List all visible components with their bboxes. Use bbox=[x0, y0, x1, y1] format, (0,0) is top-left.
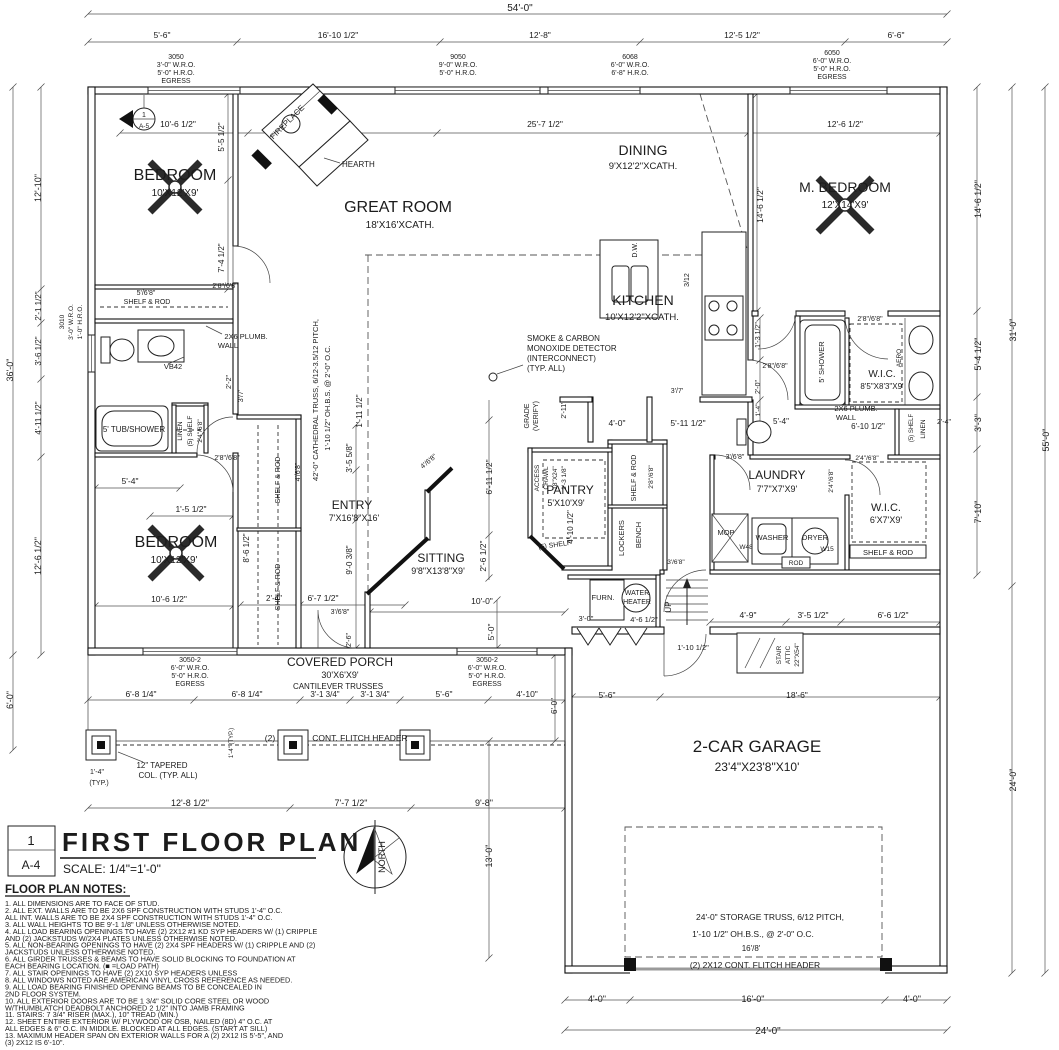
floor-plan-sheet: NORTH 1 A-4 FIRST FLOOR PLAN SCALE: 1/4"… bbox=[0, 0, 1059, 1050]
closet-label: SHELF & ROD bbox=[863, 548, 914, 557]
furnace-label: FURN. bbox=[592, 593, 615, 602]
room-label-master-wic: W.I.C. bbox=[868, 369, 895, 380]
door-callout: 4'/6'8" bbox=[420, 453, 439, 471]
plumb-wall-note: 2X6 PLUMB. bbox=[834, 404, 877, 413]
north-label: NORTH bbox=[377, 841, 387, 873]
dim: 4'-9" bbox=[740, 610, 757, 620]
lockers-label: LOCKERS bbox=[617, 520, 626, 556]
smoke-note: MONOXIDE DETECTOR bbox=[527, 344, 617, 353]
door-callout: 4'/6'8" bbox=[295, 462, 302, 481]
kitchen-range-counter bbox=[702, 232, 746, 395]
column-note: COL. (TYP. ALL) bbox=[139, 771, 198, 780]
dim: 6'-0" bbox=[5, 691, 15, 709]
room-size: 7'X16'8"X16' bbox=[329, 513, 380, 523]
window-callout: 1'-0" H.R.O. bbox=[77, 305, 84, 340]
window-callout: 3010 bbox=[59, 314, 66, 329]
dim: 5'-5 1/2" bbox=[217, 122, 226, 151]
fixtures bbox=[96, 232, 933, 673]
room-size: 23'4"X23'8"X10' bbox=[715, 760, 800, 774]
dim: 2'-0" bbox=[755, 380, 762, 394]
window-callout: 3'-0" W.R.O. bbox=[157, 62, 195, 69]
notes-list: 1. ALL DIMENSIONS ARE TO FACE OF STUD.2.… bbox=[5, 899, 317, 1047]
slope-label: 3/12 bbox=[684, 273, 691, 287]
room-size: 6'X7'X9' bbox=[870, 515, 902, 525]
smoke-note: (TYP. ALL) bbox=[527, 364, 565, 373]
title-block: 1 A-4 FIRST FLOOR PLAN SCALE: 1/4"=1'-0" bbox=[8, 826, 361, 876]
dim: 5'-6" bbox=[599, 690, 616, 700]
room-size: 9'8"X13'8"X9' bbox=[411, 566, 465, 576]
sheet-scale: SCALE: 1/4"=1'-0" bbox=[63, 862, 161, 876]
dim: 31'-0" bbox=[1008, 319, 1018, 342]
porch-column bbox=[278, 730, 308, 760]
tub-label: 5' TUB/SHOWER bbox=[103, 425, 166, 434]
attic-stair-label: STAIR bbox=[776, 645, 783, 664]
dim: 5'-6" bbox=[436, 689, 453, 699]
room-size: 12'X14'X9' bbox=[822, 200, 869, 211]
grade-note: (VERIFY) bbox=[533, 401, 540, 431]
dim: 4'-10 1/2" bbox=[566, 510, 575, 544]
window-callout: 5'-0" H.R.O. bbox=[157, 70, 194, 77]
window-callout: 9050 bbox=[450, 54, 466, 61]
floor-plan-notes: FLOOR PLAN NOTES: 1. ALL DIMENSIONS ARE … bbox=[5, 884, 317, 1047]
detail-number: 1 bbox=[27, 833, 34, 848]
window-3050-2-left bbox=[143, 648, 237, 655]
attic-stair-label: ATTIC bbox=[785, 646, 792, 665]
dim: 13'-0" bbox=[484, 845, 494, 868]
closet-label: SHELF & ROD bbox=[631, 455, 638, 502]
attic-stair-label: 22"X54" bbox=[794, 643, 801, 667]
dim: 8'-6 1/2" bbox=[242, 533, 251, 562]
dim: 1'-4" bbox=[755, 403, 762, 417]
dim: 3'-5 1/2" bbox=[797, 610, 828, 620]
dim: 12'-5 1/2" bbox=[724, 30, 760, 40]
dim: 12'-6 1/2" bbox=[827, 119, 863, 129]
dim: 55'-0" bbox=[1041, 429, 1051, 452]
linen-label: LINEN bbox=[920, 419, 927, 438]
crawl-access-label: CRAWL bbox=[543, 466, 550, 490]
header-note: (2) bbox=[265, 733, 276, 743]
window-callout: 6'-0" W.R.O. bbox=[813, 58, 851, 65]
porch-column bbox=[86, 730, 116, 760]
shelf-label: (5) SHELF bbox=[909, 413, 915, 442]
dim: 5'-4 1/2" bbox=[973, 338, 983, 371]
room-size: 7'7"X7'X9' bbox=[757, 484, 798, 494]
plumb-wall-note: WALL bbox=[836, 413, 856, 422]
dim: 2'-6" bbox=[346, 633, 353, 647]
room-size: 10'X12'X9' bbox=[151, 555, 198, 566]
room-size: 9'X12'2"XCATH. bbox=[609, 161, 678, 172]
door-callout: 2'8"/6'8" bbox=[212, 283, 238, 290]
window-callout: 5'-0" H.R.O. bbox=[468, 673, 505, 680]
dim: 1'-3 1/2" bbox=[755, 322, 762, 348]
plumb-wall-note: WALL bbox=[218, 341, 238, 350]
closet-label: SHELF & ROD bbox=[275, 564, 282, 611]
window-callout: 5'-0" H.R.O. bbox=[171, 673, 208, 680]
dim: 6'-11 1/2" bbox=[484, 459, 494, 494]
door-callout: 3'/6'8" bbox=[331, 609, 350, 616]
dim: 4'-11 1/2" bbox=[34, 401, 43, 434]
window-3010 bbox=[88, 335, 95, 372]
room-label-master-bedroom: M. BEDROOM bbox=[799, 179, 891, 195]
dryer-label: DRYER bbox=[802, 533, 829, 542]
room-label-dining: DINING bbox=[619, 142, 668, 158]
dim: 4'-0" bbox=[903, 994, 921, 1004]
dim: 4'-0" bbox=[588, 994, 606, 1004]
door-callout: 2'8"/6'8" bbox=[762, 363, 788, 370]
window-callout: EGRESS bbox=[175, 681, 205, 688]
dim: 6'-7 1/2" bbox=[307, 593, 338, 603]
door-callout: 2'8"/6'8" bbox=[648, 465, 655, 489]
master-toilet bbox=[737, 419, 771, 445]
dim: 10'-0" bbox=[471, 596, 493, 606]
dim: 10'-6 1/2" bbox=[151, 594, 187, 604]
dim: 2'-4" bbox=[937, 419, 951, 426]
section-marker bbox=[119, 95, 155, 130]
room-label-bedroom-2: BEDROOM bbox=[135, 534, 218, 551]
dim: 1'-5 1/2" bbox=[175, 504, 206, 514]
dim: 7'-4 1/2" bbox=[217, 243, 226, 272]
dim: 2'-11" bbox=[561, 401, 568, 419]
window-3050-2-right bbox=[457, 648, 537, 655]
truss-note: 42'-0" CATHEDRAL TRUSS, 6/12-3.5/12 PITC… bbox=[311, 319, 320, 481]
dim: 3'-0" bbox=[579, 614, 594, 623]
room-label-wic: W.I.C. bbox=[871, 502, 901, 514]
window-6050 bbox=[790, 87, 887, 94]
closet-label: SHELF & ROD bbox=[275, 457, 282, 504]
water-heater bbox=[622, 584, 650, 612]
dim: 25'-7 1/2" bbox=[527, 119, 563, 129]
stair-up-label: UP bbox=[664, 601, 673, 612]
dim: 12'-10" bbox=[33, 174, 43, 202]
hearth-label: HEARTH bbox=[342, 160, 375, 169]
dim: 7'-7 1/2" bbox=[335, 798, 368, 808]
window-callout: 6'-0" W.R.O. bbox=[611, 62, 649, 69]
dim: 16'-10 1/2" bbox=[318, 30, 359, 40]
dim: 18'-6" bbox=[786, 690, 808, 700]
furnace-bifold-doors bbox=[577, 628, 647, 645]
truss-note: 1'-10 1/2" OH.B.S. @ 2'-0" O.C. bbox=[323, 345, 332, 450]
room-size: 10'X12'X9' bbox=[152, 188, 199, 199]
section-marker-sheet: A-5 bbox=[139, 123, 150, 130]
dim: 5'-4" bbox=[122, 476, 139, 486]
door-callout: 2'8"/6'8" bbox=[857, 316, 883, 323]
dim: 24'-0" bbox=[755, 1026, 781, 1037]
room-label-laundry: LAUNDRY bbox=[748, 468, 805, 482]
door-callout: 2'4"/6'8" bbox=[855, 455, 879, 462]
dim: 6'-6" bbox=[888, 30, 905, 40]
bath1-vanity bbox=[138, 330, 184, 362]
window-callout: 5'-0" H.R.O. bbox=[813, 66, 850, 73]
room-size: 10'X12'2"XCATH. bbox=[605, 312, 679, 323]
dim: 10'-6 1/2" bbox=[160, 119, 196, 129]
truss-note: 24'-0" STORAGE TRUSS, 6/12 PITCH, bbox=[696, 912, 844, 922]
header-note: (2) 2X12 CONT. FLITCH HEADER bbox=[690, 960, 820, 970]
garage-door-callout: 16'/8' bbox=[742, 944, 761, 953]
shelf-label: (5) SHELF bbox=[187, 416, 194, 447]
dim: 4'-0" bbox=[609, 418, 626, 428]
door-6068 bbox=[548, 87, 640, 94]
dim: 1'-4" (TYP.) bbox=[229, 728, 235, 758]
crawl-access-label: 18"X24" bbox=[552, 466, 559, 490]
window-callout: 3050 bbox=[168, 54, 184, 61]
vanity-label: AERO bbox=[896, 349, 903, 367]
dim: 9'-0 3/8" bbox=[345, 545, 354, 574]
dim: 6'-6 1/2" bbox=[877, 610, 908, 620]
mop-sink-label: MOP bbox=[717, 528, 734, 537]
dim: 12'-6 1/2" bbox=[33, 537, 43, 575]
opening-callout: 3'/7' bbox=[238, 390, 245, 402]
room-label-sitting: SITTING bbox=[417, 551, 464, 565]
room-size: 30'X6'X9' bbox=[321, 670, 358, 680]
dim: 12'-8 1/2" bbox=[171, 798, 209, 808]
grade-note: GRADE bbox=[524, 403, 531, 428]
dim: 24'-0" bbox=[1008, 769, 1018, 792]
window-callout: 9'-0" W.R.O. bbox=[439, 62, 477, 69]
master-vanity bbox=[905, 318, 933, 405]
window-callout: W48 bbox=[739, 544, 753, 551]
dim-overall-width: 54'-0" bbox=[507, 3, 533, 14]
room-label-garage: 2-CAR GARAGE bbox=[693, 737, 821, 756]
dim: 6'-10 1/2" bbox=[851, 422, 885, 431]
dim: 3'-3" bbox=[973, 414, 983, 432]
dim: 2'-4" bbox=[266, 594, 282, 603]
section-marker-number: 1 bbox=[142, 112, 146, 119]
floor-plan-drawing: NORTH 1 A-4 FIRST FLOOR PLAN SCALE: 1/4"… bbox=[0, 0, 1059, 1050]
door-callout: 3'/6'8" bbox=[667, 559, 685, 566]
washer-label: WASHER bbox=[756, 533, 789, 542]
closet-label: SHELF & ROD bbox=[124, 299, 171, 306]
door-callout: 5'/6'8" bbox=[137, 290, 156, 297]
room-size: 8'5"X8'3"X9' bbox=[860, 382, 904, 391]
smoke-detector bbox=[489, 365, 523, 381]
dim: 5'-6" bbox=[154, 30, 171, 40]
dim: 6'-0" bbox=[550, 698, 559, 714]
smoke-note: SMOKE & CARBON bbox=[527, 334, 600, 343]
bath1-toilet bbox=[101, 337, 134, 363]
sheet-title: FIRST FLOOR PLAN bbox=[62, 827, 361, 857]
window-callout: 3050-2 bbox=[179, 657, 201, 664]
linen-label: LINEN bbox=[177, 421, 184, 440]
room-label-great-room: GREAT ROOM bbox=[344, 199, 452, 216]
dim: 2'-2" bbox=[226, 375, 233, 389]
dim: 3'-5 5/8" bbox=[345, 443, 354, 472]
dim: 7'-10" bbox=[973, 501, 983, 524]
dim: 5'-11 1/2" bbox=[670, 418, 705, 428]
window-callout: 6068 bbox=[622, 54, 638, 61]
dim: (TYP.) bbox=[89, 780, 108, 787]
dishwasher-label: D.W. bbox=[632, 242, 639, 257]
dim: 2'-6 1/2" bbox=[478, 540, 488, 571]
door-callout: 2'4"/6'8" bbox=[197, 419, 204, 443]
opening-callout: 3'/7' bbox=[671, 388, 683, 395]
dim: 4'-6 1/2" bbox=[630, 615, 658, 624]
note-line: (3) 2X12 IS 6'-10". bbox=[5, 1038, 65, 1047]
dim: 6'-8 1/4" bbox=[125, 689, 156, 699]
dim: 6'-8 1/4" bbox=[231, 689, 262, 699]
dim: 3'-1 3/4" bbox=[310, 690, 339, 699]
dim: 5'-0" bbox=[486, 624, 496, 641]
dim: 5'-4" bbox=[773, 417, 789, 426]
dim: 14'-6 1/2" bbox=[755, 187, 765, 223]
window-callout: 3'-0" W.R.O. bbox=[68, 304, 75, 340]
sheet-number: A-4 bbox=[22, 858, 41, 872]
room-label-porch: COVERED PORCH bbox=[287, 655, 393, 669]
dim: 1'-11 1/2" bbox=[355, 394, 364, 427]
rod-label: ROD bbox=[789, 560, 804, 567]
water-heater-label: HEATER bbox=[623, 599, 651, 606]
bench-label: BENCH bbox=[634, 522, 643, 548]
window-3050 bbox=[148, 87, 240, 94]
crawl-access-label: ACCESS bbox=[534, 464, 541, 491]
window-callout: EGRESS bbox=[817, 74, 847, 81]
room-size: 5'X10'X9' bbox=[547, 498, 584, 508]
dim: 14'-6 1/2" bbox=[973, 180, 983, 218]
window-9050 bbox=[395, 87, 540, 94]
room-label-entry: ENTRY bbox=[332, 498, 372, 512]
window-callout: 6050 bbox=[824, 50, 840, 57]
dim: 16'-0" bbox=[742, 994, 765, 1004]
dim: 3'-1 3/4" bbox=[360, 690, 389, 699]
door-callout: 3'/6'8" bbox=[726, 454, 745, 461]
dim: 36'-0" bbox=[5, 359, 15, 382]
dim: 1'-10 1/2" bbox=[677, 643, 709, 652]
dim: 4'-10" bbox=[516, 689, 538, 699]
truss-note: 1'-10 1/2" OH.B.S., @ 2'-0" O.C. bbox=[692, 929, 814, 939]
mop-sink bbox=[712, 514, 748, 562]
window-callout: 6'-8" H.R.O. bbox=[611, 70, 648, 77]
notes-heading: FLOOR PLAN NOTES: bbox=[5, 884, 126, 896]
window-callout: 3050-2 bbox=[476, 657, 498, 664]
window-callout: EGRESS bbox=[161, 78, 191, 85]
door-callout: 2'8"/6'8" bbox=[214, 455, 240, 462]
smoke-note: (INTERCONNECT) bbox=[527, 354, 596, 363]
dim: 1'-3 1/8" bbox=[561, 465, 568, 489]
column-note: 12" TAPERED bbox=[136, 761, 187, 770]
vanity-label: VB42 bbox=[164, 362, 182, 371]
window-callout: 5'-0" H.R.O. bbox=[439, 70, 476, 77]
room-size: 18'X16'XCATH. bbox=[366, 220, 435, 231]
window-callout: 6'-0" W.R.O. bbox=[468, 665, 506, 672]
room-label-bedroom-1: BEDROOM bbox=[134, 167, 217, 184]
water-heater-label: WATER bbox=[625, 590, 650, 597]
window-callout: EGRESS bbox=[472, 681, 502, 688]
shower-label: 5' SHOWER bbox=[817, 341, 826, 383]
dim: 9'-8" bbox=[475, 798, 493, 808]
room-label-kitchen: KITCHEN bbox=[612, 292, 673, 308]
dim: 1'-4" bbox=[90, 769, 104, 776]
door-callout: 2'4"/6'8" bbox=[828, 469, 835, 493]
dim: 12'-8" bbox=[529, 30, 551, 40]
window-callout: 6'-0" W.R.O. bbox=[171, 665, 209, 672]
header-note: CONT. FLITCH HEADER bbox=[312, 733, 407, 743]
dim: 3'-6 1/2" bbox=[34, 336, 43, 365]
window-callout: W15 bbox=[820, 546, 834, 553]
plumb-wall-note: 2X6 PLUMB. bbox=[224, 332, 267, 341]
dim: 2'-1 1/2" bbox=[34, 291, 43, 320]
